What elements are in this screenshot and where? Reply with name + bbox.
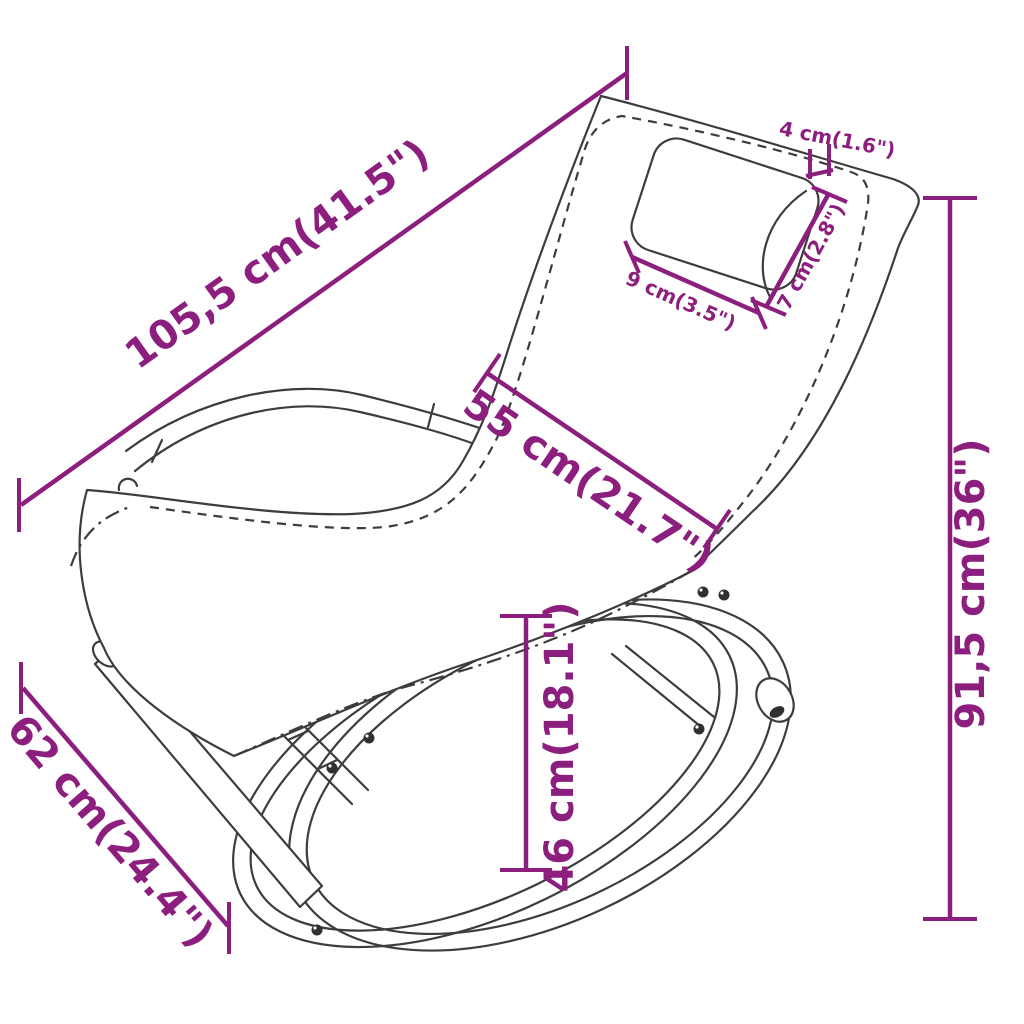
- screw: [364, 733, 375, 744]
- dimension-total-length-label: 105,5 cm(41.5"): [117, 130, 438, 378]
- screw: [719, 590, 730, 601]
- screw: [694, 724, 705, 735]
- dimension-total-height-label: 91,5 cm(36"): [948, 438, 994, 729]
- screw: [698, 587, 709, 598]
- screw: [327, 763, 338, 774]
- hoop-crossbar: [612, 646, 714, 726]
- rocker-foot-cap: [749, 672, 801, 729]
- dimension-seat-height-label: 46 cm(18.1"): [537, 601, 583, 892]
- corner-screw-dome: [119, 479, 137, 490]
- side-frame-tube: [126, 389, 494, 471]
- product-dimension-diagram: 105,5 cm(41.5") 55 cm(21.7") 4 cm(1.6") …: [0, 0, 1024, 1024]
- dimension-total-height: 91,5 cm(36"): [923, 198, 994, 919]
- screw: [312, 925, 323, 936]
- diagram-canvas: 105,5 cm(41.5") 55 cm(21.7") 4 cm(1.6") …: [0, 0, 1024, 1024]
